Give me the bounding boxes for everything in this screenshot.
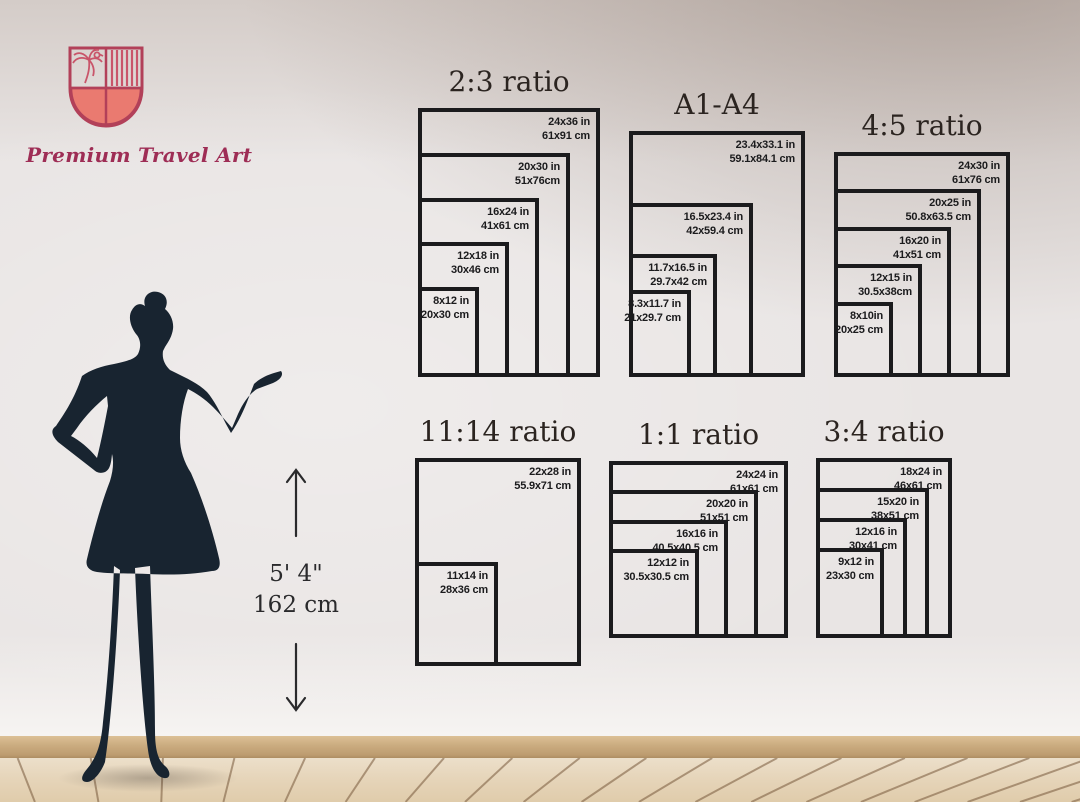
palm-bird-emblem [73, 50, 103, 83]
size-label: 20x30 in51x76cm [515, 157, 566, 189]
size-chart-4-5: 4:5 ratio 24x30 in61x76 cm20x25 in50.8x6… [834, 152, 1010, 377]
height-feet: 5' 4" [253, 559, 339, 590]
size-label: 12x18 in30x46 cm [451, 246, 505, 278]
size-label: 23.4x33.1 in59.1x84.1 cm [730, 135, 802, 167]
chart-title: 1:1 ratio [638, 418, 759, 451]
size-box: 8.3x11.7 in21x29.7 cm [629, 290, 691, 377]
chart-title: A1-A4 [674, 88, 760, 121]
size-label: 20x25 in50.8x63.5 cm [906, 193, 978, 225]
size-box: 9x12 in23x30 cm [816, 548, 884, 638]
chart-title: 4:5 ratio [861, 109, 982, 142]
size-label: 16.5x23.4 in42x59.4 cm [684, 207, 749, 239]
chart-title: 11:14 ratio [420, 415, 577, 448]
brand-shield-icon [66, 44, 146, 132]
size-box: 12x12 in30.5x30.5 cm [609, 549, 699, 638]
size-label: 22x28 in55.9x71 cm [514, 462, 577, 494]
size-label: 12x12 in30.5x30.5 cm [624, 553, 696, 585]
size-label: 8.3x11.7 in21x29.7 cm [624, 294, 687, 326]
size-chart-a1-a4: A1-A4 23.4x33.1 in59.1x84.1 cm16.5x23.4 … [629, 131, 805, 377]
size-label: 16x20 in41x51 cm [893, 231, 947, 263]
chart-title: 3:4 ratio [823, 415, 944, 448]
size-box: 8x10in20x25 cm [834, 302, 893, 377]
arrow-up-icon [280, 466, 312, 538]
size-label: 24x36 in61x91 cm [542, 112, 596, 144]
size-chart-1-1: 1:1 ratio 24x24 in61x61 cm20x20 in51x51 … [609, 461, 788, 638]
chart-title: 2:3 ratio [448, 65, 569, 98]
size-label: 24x30 in61x76 cm [952, 156, 1006, 188]
height-indicator: 5' 4" 162 cm [250, 466, 342, 714]
size-label: 12x15 in30.5x38cm [858, 268, 918, 300]
size-chart-3-4: 3:4 ratio 18x24 in46x61 cm15x20 in38x51 … [816, 458, 952, 638]
size-label: 16x24 in41x61 cm [481, 202, 535, 234]
size-label: 8x10in20x25 cm [835, 306, 889, 338]
size-label: 8x12 in20x30 cm [421, 291, 475, 323]
size-chart-11-14: 11:14 ratio 22x28 in55.9x71 cm11x14 in28… [415, 458, 581, 666]
size-label: 11x14 in28x36 cm [440, 566, 494, 598]
size-chart-2-3: 2:3 ratio 24x36 in61x91 cm20x30 in51x76c… [418, 108, 600, 377]
poster-size-guide: Premium Travel Art 5' 4" 162 cm 2:3 rati… [0, 0, 1080, 802]
height-cm: 162 cm [253, 590, 339, 621]
size-box: 11x14 in28x36 cm [415, 562, 498, 666]
size-label: 11.7x16.5 in29.7x42 cm [648, 258, 713, 290]
arrow-down-icon [280, 642, 312, 714]
size-label: 9x12 in23x30 cm [826, 552, 880, 584]
brand-name: Premium Travel Art [26, 143, 216, 167]
size-box: 8x12 in20x30 cm [418, 287, 479, 377]
